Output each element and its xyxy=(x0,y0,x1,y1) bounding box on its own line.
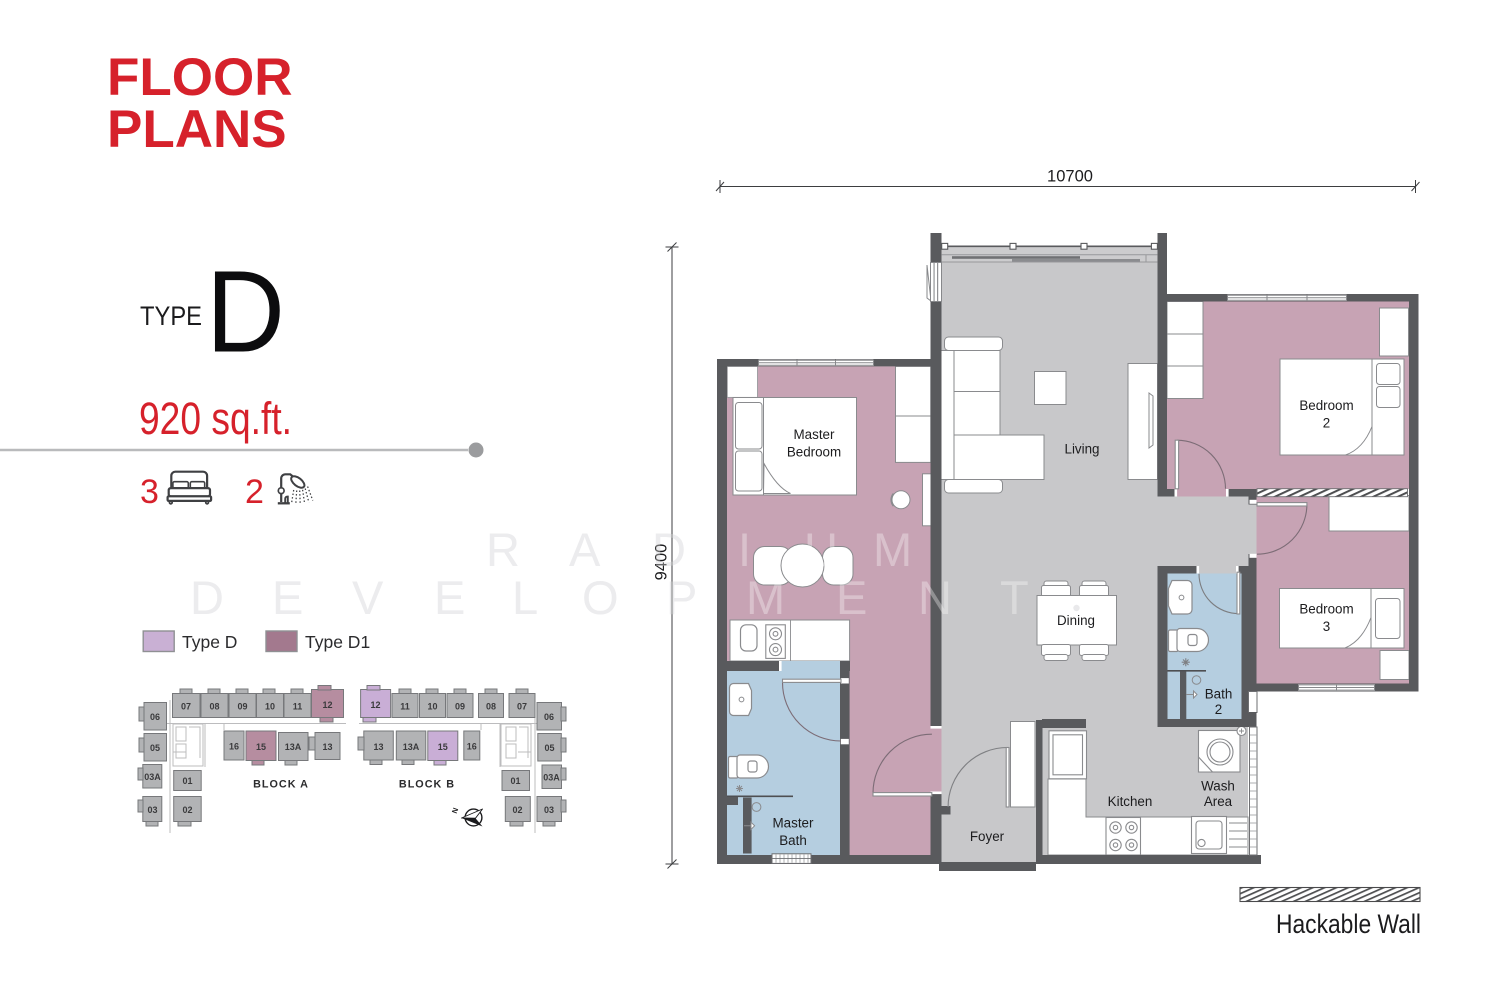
svg-text:Living: Living xyxy=(1065,442,1100,457)
svg-text:15: 15 xyxy=(438,742,448,752)
svg-text:12: 12 xyxy=(322,700,332,710)
svg-text:03: 03 xyxy=(544,805,554,815)
svg-text:R: R xyxy=(486,523,520,576)
svg-text:11: 11 xyxy=(400,702,410,712)
svg-text:T: T xyxy=(1000,571,1029,624)
svg-text:Foyer: Foyer xyxy=(970,829,1005,844)
svg-text:D: D xyxy=(652,523,686,576)
svg-text:03A: 03A xyxy=(543,773,560,783)
svg-text:D: D xyxy=(206,247,285,377)
svg-text:13A: 13A xyxy=(403,742,420,752)
svg-text:16: 16 xyxy=(229,742,239,752)
svg-text:920 sq.ft.: 920 sq.ft. xyxy=(139,393,292,444)
svg-text:Area: Area xyxy=(1204,794,1233,809)
svg-text:Bedroom: Bedroom xyxy=(1299,398,1353,413)
svg-text:Bedroom: Bedroom xyxy=(1299,602,1353,617)
svg-text:02: 02 xyxy=(512,805,522,815)
svg-text:2: 2 xyxy=(1323,416,1330,431)
svg-text:Type D1: Type D1 xyxy=(305,632,370,652)
svg-text:15: 15 xyxy=(256,742,266,752)
svg-text:12: 12 xyxy=(370,700,380,710)
svg-text:BLOCK A: BLOCK A xyxy=(253,779,309,791)
svg-text:01: 01 xyxy=(182,776,192,786)
svg-text:10: 10 xyxy=(265,702,275,712)
svg-text:09: 09 xyxy=(455,702,465,712)
svg-text:2: 2 xyxy=(1215,702,1222,717)
svg-text:08: 08 xyxy=(209,702,219,712)
svg-text:11: 11 xyxy=(293,702,303,712)
svg-text:10700: 10700 xyxy=(1047,168,1093,186)
svg-text:L: L xyxy=(512,571,538,624)
svg-text:Hackable Wall: Hackable Wall xyxy=(1276,909,1421,939)
svg-text:03: 03 xyxy=(147,805,157,815)
svg-text:Bath: Bath xyxy=(779,833,807,848)
svg-text:06: 06 xyxy=(544,712,554,722)
svg-text:M: M xyxy=(746,571,785,624)
svg-text:10: 10 xyxy=(427,702,437,712)
svg-text:E: E xyxy=(272,571,303,624)
svg-text:07: 07 xyxy=(181,702,191,712)
svg-text:FLOOR: FLOOR xyxy=(107,48,292,107)
svg-text:A: A xyxy=(569,523,601,576)
svg-text:Wash: Wash xyxy=(1201,779,1235,794)
svg-text:03A: 03A xyxy=(144,772,161,782)
svg-text:Type D: Type D xyxy=(182,632,237,652)
svg-text:16: 16 xyxy=(467,742,477,752)
svg-text:PLANS: PLANS xyxy=(107,100,287,159)
svg-text:Dining: Dining xyxy=(1057,613,1095,628)
svg-text:Kitchen: Kitchen xyxy=(1108,794,1153,809)
svg-text:N: N xyxy=(918,571,952,624)
svg-text:07: 07 xyxy=(517,702,527,712)
svg-text:01: 01 xyxy=(510,776,520,786)
svg-text:3: 3 xyxy=(1323,619,1330,634)
svg-text:TYPE: TYPE xyxy=(140,301,202,331)
svg-text:2: 2 xyxy=(245,473,264,511)
svg-text:Bath: Bath xyxy=(1205,687,1233,702)
svg-text:Bedroom: Bedroom xyxy=(787,445,841,460)
svg-text:Master: Master xyxy=(773,816,814,831)
svg-text:BLOCK B: BLOCK B xyxy=(399,779,455,791)
svg-text:U: U xyxy=(804,523,838,576)
svg-text:I: I xyxy=(738,523,751,576)
svg-text:13: 13 xyxy=(322,742,332,752)
svg-text:06: 06 xyxy=(150,712,160,722)
svg-text:E: E xyxy=(836,571,867,624)
svg-text:V: V xyxy=(352,571,384,624)
svg-text:O: O xyxy=(582,571,619,624)
svg-text:02: 02 xyxy=(182,805,192,815)
svg-text:08: 08 xyxy=(486,702,496,712)
svg-text:E: E xyxy=(434,571,465,624)
svg-text:05: 05 xyxy=(150,743,160,753)
svg-text:05: 05 xyxy=(544,743,554,753)
svg-text:3: 3 xyxy=(140,473,159,511)
svg-text:13: 13 xyxy=(373,742,383,752)
svg-text:13A: 13A xyxy=(285,742,302,752)
svg-text:09: 09 xyxy=(237,702,247,712)
svg-text:M: M xyxy=(873,523,912,576)
svg-text:D: D xyxy=(190,571,224,624)
svg-text:Master: Master xyxy=(794,427,835,442)
svg-text:P: P xyxy=(666,571,697,624)
